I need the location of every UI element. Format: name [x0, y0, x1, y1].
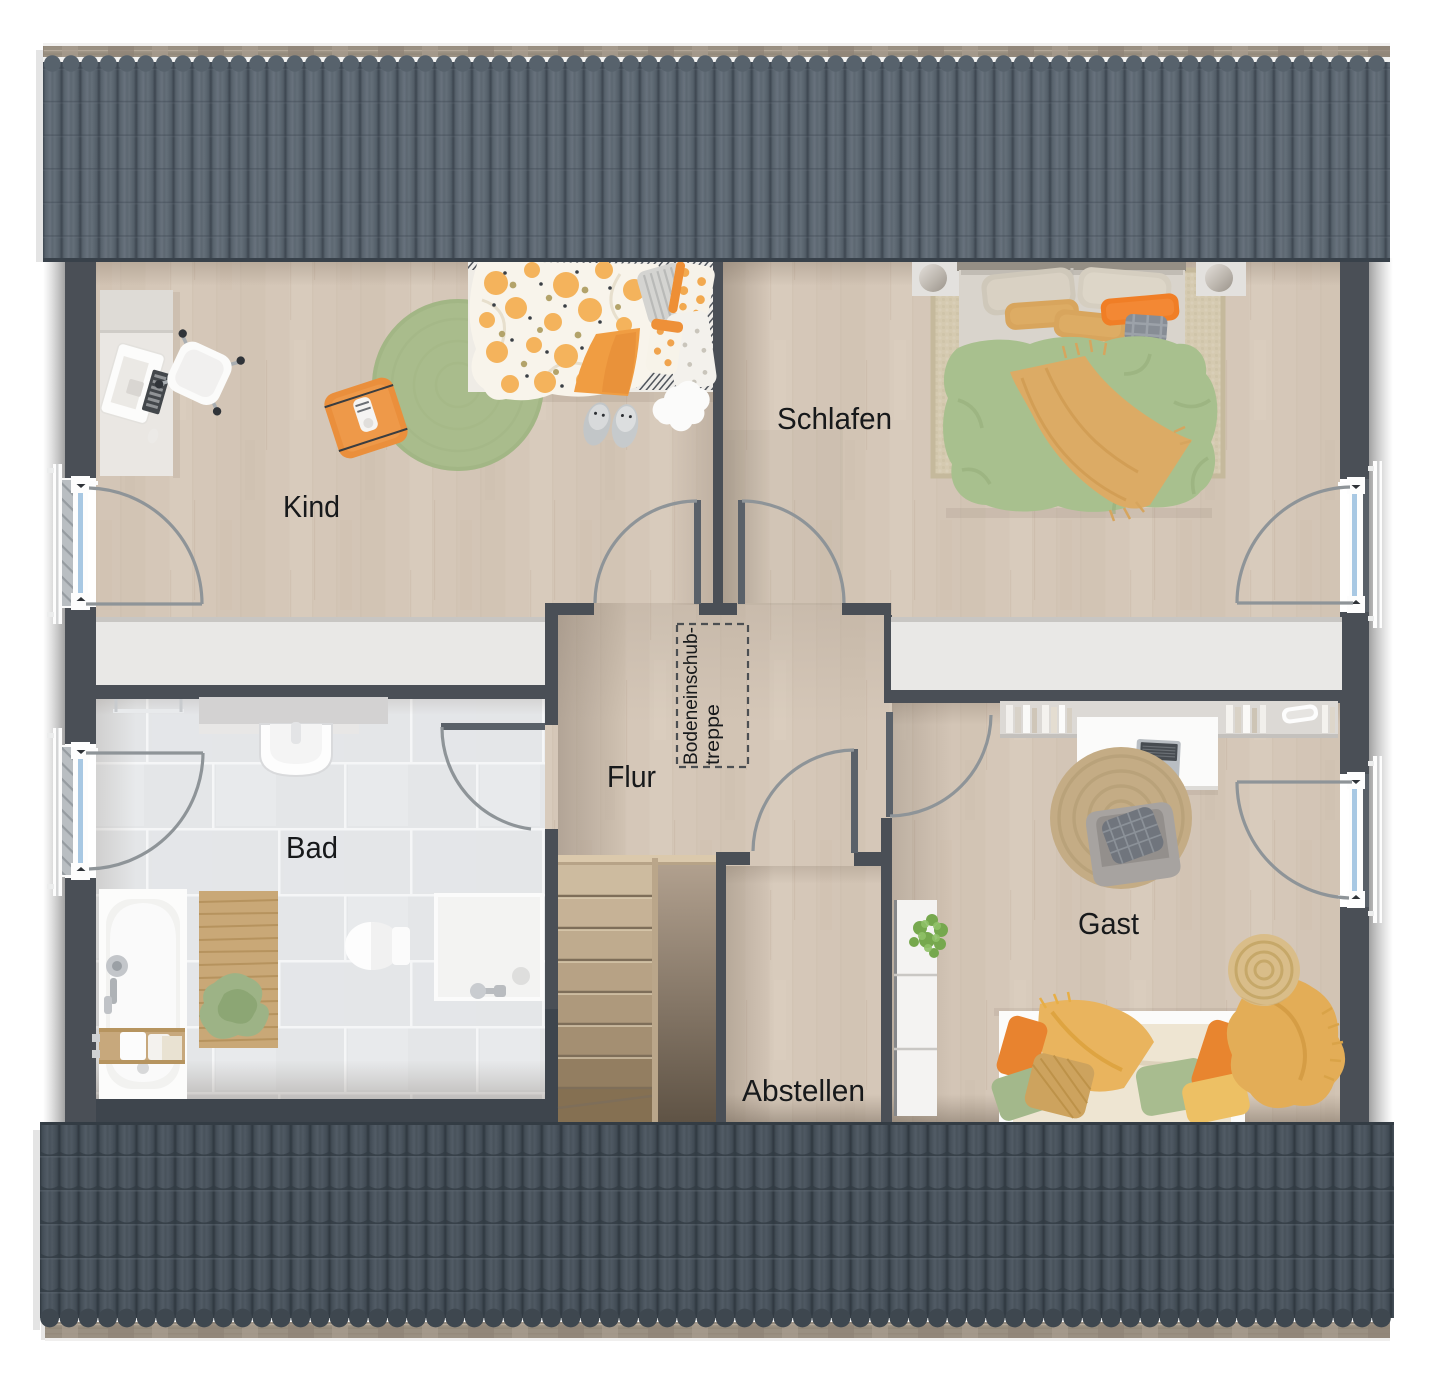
svg-text:Gast: Gast — [1078, 906, 1139, 941]
svg-text:Kind: Kind — [283, 489, 340, 524]
svg-text:Flur: Flur — [607, 759, 656, 794]
svg-text:Bodeneinschub-: Bodeneinschub- — [681, 627, 702, 765]
svg-text:Schlafen: Schlafen — [777, 401, 892, 436]
svg-text:treppe: treppe — [703, 704, 724, 765]
svg-text:Abstellen: Abstellen — [742, 1073, 865, 1108]
svg-text:Bad: Bad — [286, 830, 338, 865]
